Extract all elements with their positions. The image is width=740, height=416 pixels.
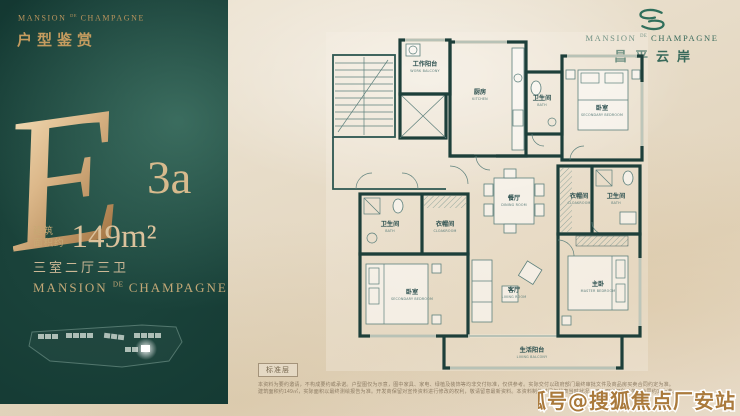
svg-text:CLOAKROOM: CLOAKROOM <box>433 229 456 233</box>
brand-wordmark-top: MANSION DE CHAMPAGNE <box>18 13 145 23</box>
label-cloakroom-left: 衣帽间 <box>436 220 455 228</box>
svg-text:BATH: BATH <box>385 229 395 233</box>
brand-left: MANSION <box>18 14 67 23</box>
unit-info-panel: MANSION DE CHAMPAGNE 户型鉴赏 E 3a 建筑 面积约 14… <box>0 0 228 404</box>
label-living-room: 客厅 <box>507 286 521 294</box>
area-prefix-line1: 建筑 <box>33 226 65 238</box>
label-dining: 餐厅 <box>508 194 521 202</box>
floor-plan-drawing: 工作阳台 WORK BALCONY 厨房 KITCHEN 卫生间 BATH 卧室… <box>326 26 648 371</box>
highlighted-building <box>141 345 150 352</box>
floor-tag: 标准层 <box>258 363 298 377</box>
brand-wordmark-bottom: MANSION DE CHAMPAGNE <box>33 280 228 296</box>
svg-text:LIVING ROOM: LIVING ROOM <box>502 295 527 299</box>
svg-text:SECONDARY BEDROOM: SECONDARY BEDROOM <box>581 113 623 117</box>
page-title: 户型鉴赏 <box>17 29 97 50</box>
label-bedroom-top: 卧室 <box>596 104 608 112</box>
svg-text:BATH: BATH <box>537 103 547 107</box>
label-work-balcony: 工作阳台 <box>413 60 438 68</box>
svg-text:WORK BALCONY: WORK BALCONY <box>410 69 440 73</box>
svg-text:BATH: BATH <box>611 201 621 205</box>
label-kitchen: 厨房 <box>474 88 486 96</box>
site-key-map <box>22 318 200 382</box>
label-master-bath: 卫生间 <box>607 192 626 200</box>
svg-text:LIVING BALCONY: LIVING BALCONY <box>517 355 548 359</box>
cloakroom-left-hatch <box>424 196 466 208</box>
label-guest-bath: 卫生间 <box>381 220 400 228</box>
brand-mid: DE <box>70 13 77 18</box>
label-bath-top: 卫生间 <box>533 94 552 102</box>
area-row: 建筑 面积约 149m² <box>33 221 157 254</box>
svg-text:SECONDARY BEDROOM: SECONDARY BEDROOM <box>391 297 433 301</box>
watermark: 搜狐号@搜狐焦点厂安站 <box>538 385 738 415</box>
site-boundary <box>29 325 182 367</box>
svg-text:KITCHEN: KITCHEN <box>472 97 488 101</box>
svg-text:CLOAKROOM: CLOAKROOM <box>567 201 590 205</box>
unit-suffix: 3a <box>147 151 191 205</box>
area-value: 149m² <box>72 221 157 254</box>
label-master-bedroom: 主卧 <box>592 280 605 288</box>
area-prefix-line2: 面积约 <box>33 238 65 250</box>
label-bedroom-left: 卧室 <box>406 288 418 296</box>
label-cloakroom-right: 衣帽间 <box>570 192 589 200</box>
room-count-text: 三室二厅三卫 <box>33 257 129 276</box>
svg-text:MASTER BEDROOM: MASTER BEDROOM <box>581 289 616 293</box>
area-prefix: 建筑 面积约 <box>33 226 65 249</box>
svg-text:DINING ROOM: DINING ROOM <box>501 203 527 207</box>
label-living-balcony: 生活阳台 <box>520 346 545 354</box>
watermark-text: 搜狐号@搜狐焦点厂安站 <box>538 389 736 413</box>
brand-right: CHAMPAGNE <box>81 14 145 23</box>
